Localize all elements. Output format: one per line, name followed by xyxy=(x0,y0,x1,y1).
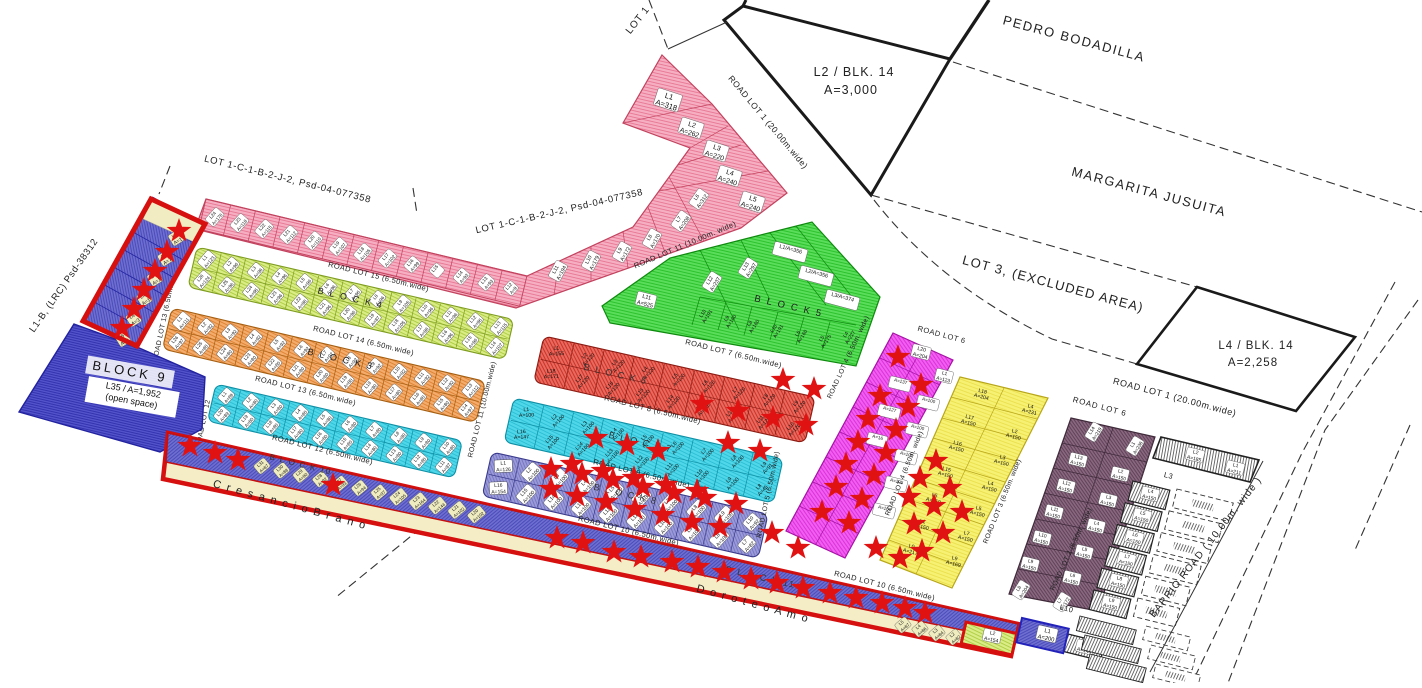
svg-text:A=155: A=155 xyxy=(549,351,564,358)
svg-text:L4 / BLK. 14: L4 / BLK. 14 xyxy=(1218,340,1293,352)
svg-text:A=3,000: A=3,000 xyxy=(824,83,878,97)
svg-text:A=2,258: A=2,258 xyxy=(1228,357,1278,369)
svg-text:A=100: A=100 xyxy=(519,412,534,419)
svg-text:L1: L1 xyxy=(500,461,506,467)
svg-text:L16: L16 xyxy=(494,483,503,489)
svg-text:A=154: A=154 xyxy=(491,489,506,496)
svg-text:A=126: A=126 xyxy=(496,467,511,474)
svg-text:A=147: A=147 xyxy=(514,434,529,441)
svg-text:A=171: A=171 xyxy=(544,374,559,381)
svg-text:L2 / BLK. 14: L2 / BLK. 14 xyxy=(814,65,895,79)
